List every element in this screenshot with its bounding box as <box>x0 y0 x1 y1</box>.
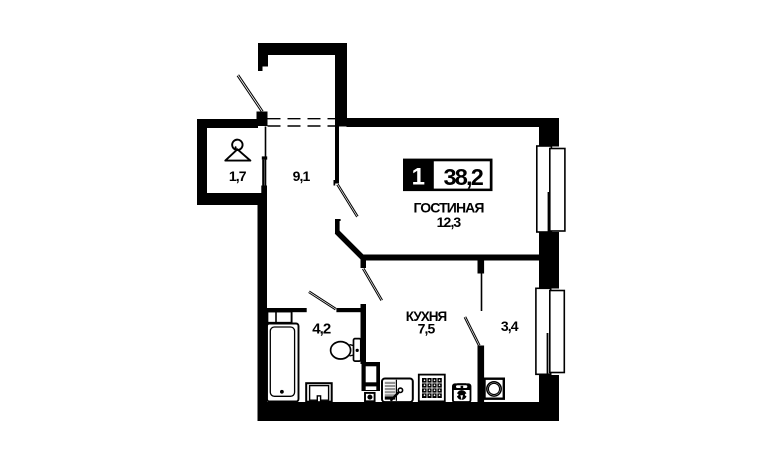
svg-text:38,2: 38,2 <box>444 164 484 190</box>
svg-text:1: 1 <box>412 163 425 190</box>
svg-text:3,4: 3,4 <box>501 318 519 334</box>
svg-text:4,2: 4,2 <box>312 321 331 338</box>
svg-text:12,3: 12,3 <box>437 214 462 230</box>
svg-text:1,7: 1,7 <box>229 168 247 184</box>
svg-text:7,5: 7,5 <box>418 321 436 337</box>
svg-text:9,1: 9,1 <box>293 168 311 184</box>
